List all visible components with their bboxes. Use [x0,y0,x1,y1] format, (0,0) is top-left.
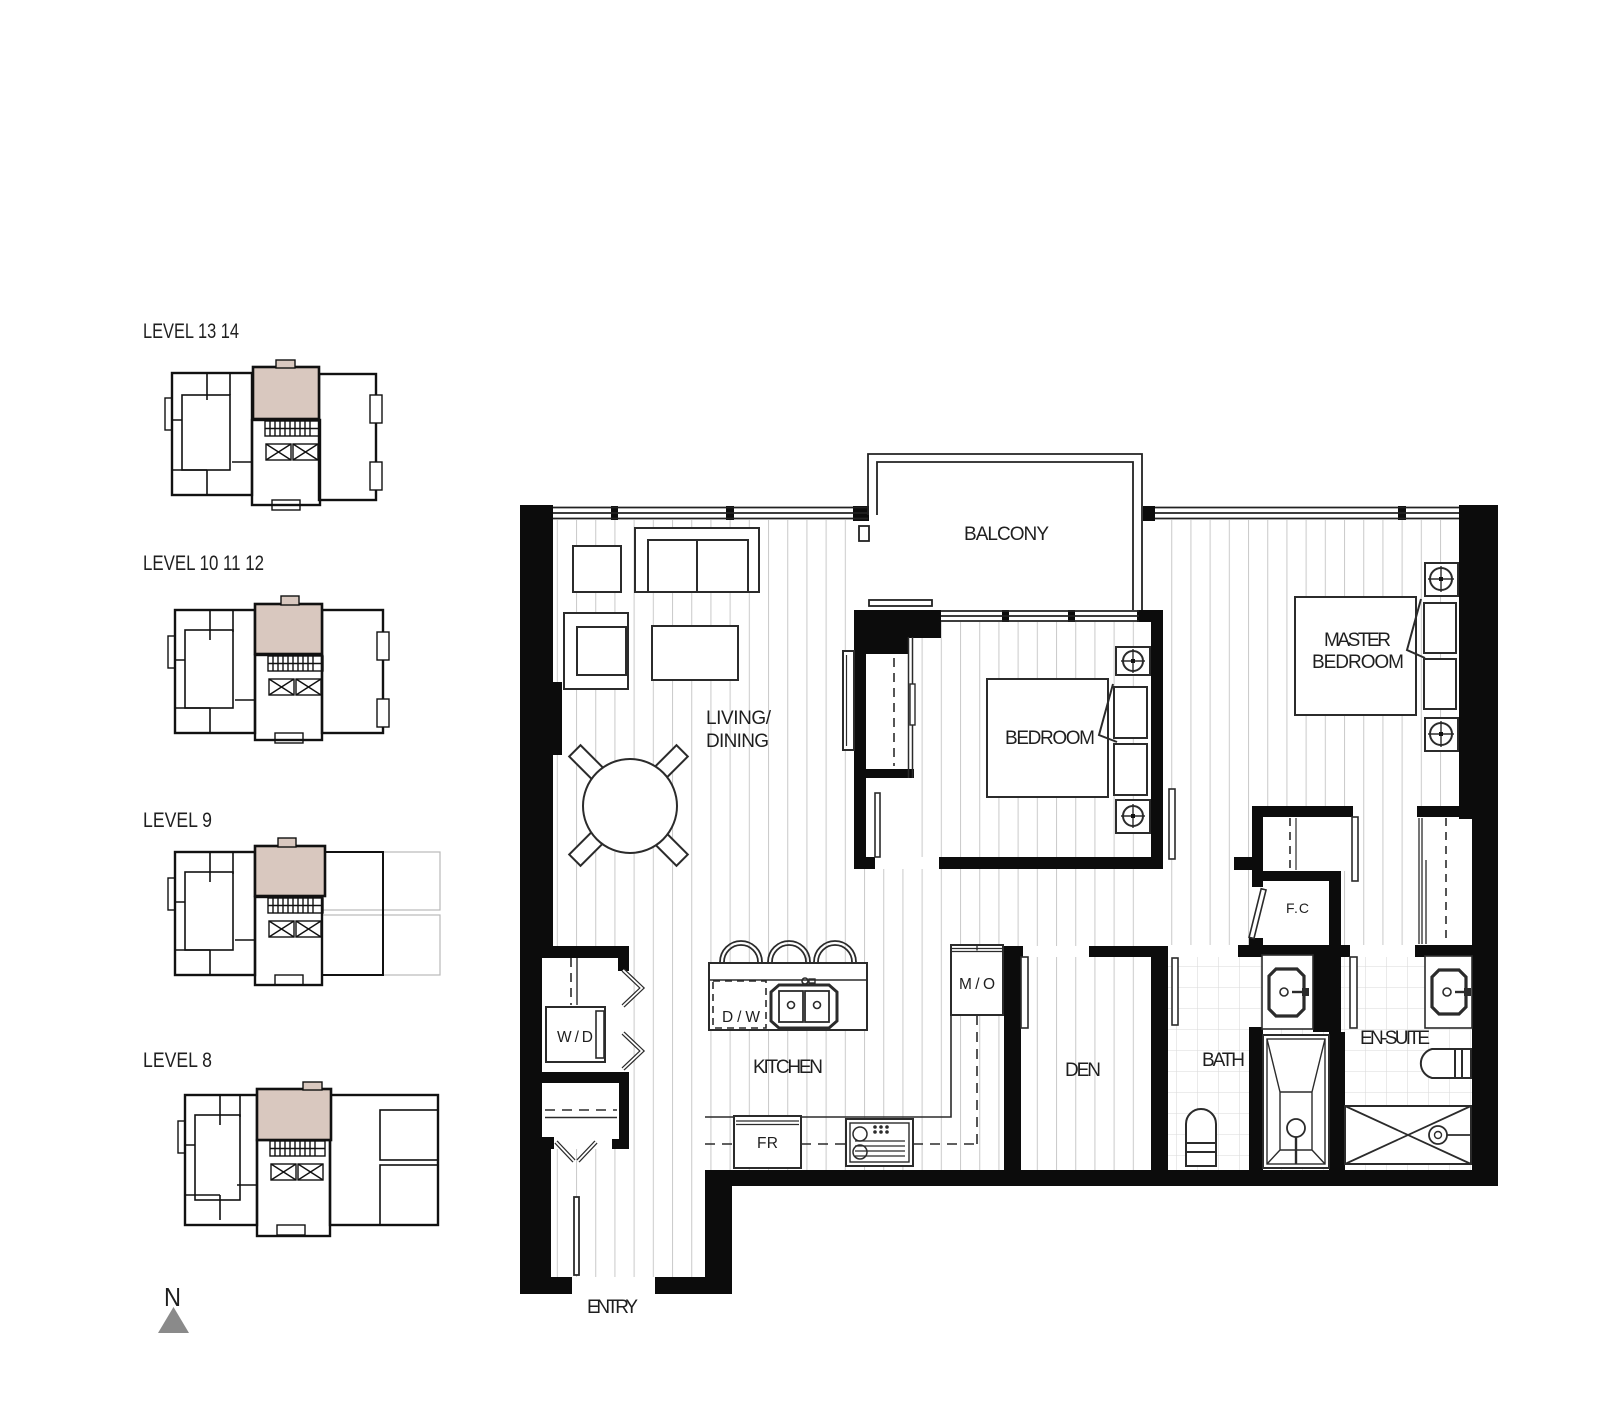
svg-text:BEDROOM: BEDROOM [1312,652,1404,673]
svg-text:N: N [164,1282,181,1312]
svg-text:D/W: D/W [722,1009,760,1026]
svg-text:BALCONY: BALCONY [964,524,1049,545]
svg-text:LEVEL 13 14: LEVEL 13 14 [143,320,239,343]
svg-text:F.C: F.C [1286,900,1309,916]
svg-text:W/D: W/D [557,1029,593,1046]
svg-text:LEVEL 8: LEVEL 8 [143,1049,212,1072]
svg-text:DINING: DINING [706,731,769,752]
svg-text:BATH: BATH [1202,1050,1245,1071]
svg-text:KITCHEN: KITCHEN [753,1057,823,1078]
svg-text:LIVING/: LIVING/ [706,708,772,729]
svg-text:MASTER: MASTER [1324,630,1391,651]
svg-text:BEDROOM: BEDROOM [1005,728,1095,749]
svg-text:ENTRY: ENTRY [587,1297,638,1318]
svg-text:M/O: M/O [959,976,995,993]
svg-text:LEVEL 9: LEVEL 9 [143,809,212,832]
svg-text:DEN: DEN [1065,1060,1101,1081]
svg-text:EN-SUITE: EN-SUITE [1360,1028,1430,1049]
svg-text:LEVEL 10 11 12: LEVEL 10 11 12 [143,552,264,575]
svg-text:FR: FR [757,1135,778,1152]
